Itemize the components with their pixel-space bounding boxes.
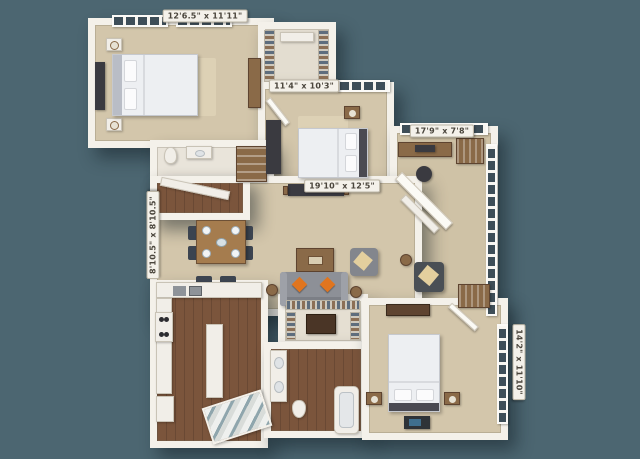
place-setting (202, 249, 211, 258)
bookcase-top (456, 138, 484, 164)
place-setting (202, 226, 211, 235)
armchair-sunroom (414, 262, 444, 292)
headboard (389, 403, 439, 411)
clothes-rack-left (264, 30, 275, 82)
closet-shelf (280, 32, 314, 42)
office-chair (416, 166, 432, 182)
clothes-rack-top (286, 300, 360, 310)
window-bedroom2 (338, 80, 390, 92)
burner (164, 332, 169, 337)
kitchen-island-wall (206, 324, 223, 398)
nightstand-bedroom3-right (444, 392, 460, 405)
tv-stand-left (283, 186, 288, 195)
sink-basin (173, 286, 186, 296)
pillow (345, 133, 357, 150)
pillow (124, 60, 137, 82)
pillow (394, 389, 412, 401)
toilet-bath1 (164, 147, 177, 164)
sink (274, 357, 284, 369)
label-bedroom3-dimensions: 14'2" x 11'10" (513, 324, 526, 400)
lamp-icon (348, 109, 357, 118)
label-bedroom1-dimensions: 12'6.5" x 11'11" (163, 10, 248, 23)
headboard (359, 129, 367, 177)
label-living-dimensions: 19'10" x 12'5" (304, 180, 380, 193)
window-bedroom1-left (112, 15, 168, 27)
orange-pillow (320, 277, 336, 293)
desk-dresser-bedroom2 (266, 120, 281, 174)
duvet-fold (337, 129, 339, 177)
dining-table (196, 220, 246, 264)
centerpiece (216, 238, 227, 247)
dresser-bedroom1 (248, 58, 261, 108)
tub-basin (339, 392, 354, 428)
armchair-living (350, 248, 378, 276)
orange-pillow (292, 277, 308, 293)
lamp-icon (370, 395, 379, 404)
closet-dresser (306, 314, 336, 334)
clothes-rack-right (350, 312, 360, 340)
tray (308, 256, 323, 265)
place-setting (231, 226, 240, 235)
duvet-fold (143, 55, 145, 115)
side-table-sofa-left (266, 284, 278, 296)
pillow (345, 155, 357, 172)
bed-bedroom3 (388, 334, 440, 412)
nightstand-bedroom2 (344, 106, 360, 119)
bookcase-bottom (458, 284, 490, 308)
floorplan-canvas: 12'6.5" x 11'11" 11'4" x 10'3" 17'9" x 7… (0, 0, 640, 459)
headboard (113, 55, 122, 115)
kitchen-counter-sink (156, 282, 262, 298)
sink (195, 150, 205, 157)
dresser-bedroom3 (386, 304, 430, 316)
lamp-icon (110, 121, 119, 130)
burner (164, 317, 169, 322)
tv-armoire-bedroom1 (95, 62, 105, 110)
refrigerator (156, 396, 174, 422)
throw-blanket (353, 251, 373, 271)
vanity-bath1 (186, 146, 212, 159)
floor-mat (404, 416, 430, 429)
mat-detail (409, 419, 421, 426)
side-table-sunroom (400, 254, 412, 266)
computer-monitor (415, 145, 435, 152)
side-table-sofa-right (350, 286, 362, 298)
duvet-fold (389, 381, 439, 383)
bed-bedroom1 (112, 54, 198, 116)
label-sunroom-dimensions: 17'9" x 7'8" (410, 125, 474, 138)
label-bedroom2-dimensions: 11'4" x 10'3" (269, 80, 339, 93)
clothes-rack-left (286, 312, 296, 340)
bed-bedroom2 (298, 128, 368, 178)
nightstand-bedroom3-left (366, 392, 382, 405)
sink-basin (189, 286, 202, 296)
linen-closet (236, 146, 267, 182)
coffee-table (296, 248, 334, 272)
desk-sunroom (398, 142, 452, 157)
throw-blanket (418, 265, 439, 286)
bathtub (334, 386, 359, 434)
place-setting (231, 249, 240, 258)
nightstand-bedroom1-bottom (106, 118, 122, 131)
lamp-icon (448, 395, 457, 404)
label-dining-dimensions: 8'10.5" x 8'10.5" (147, 191, 160, 279)
window-bedroom3 (497, 324, 508, 424)
lamp-icon (110, 41, 119, 50)
vanity-bath2 (270, 350, 287, 402)
nightstand-bedroom1-top (106, 38, 122, 51)
clothes-rack-right (318, 30, 329, 82)
sink (274, 381, 284, 393)
stove (155, 312, 173, 342)
pillow (124, 88, 137, 110)
pillow (416, 389, 434, 401)
